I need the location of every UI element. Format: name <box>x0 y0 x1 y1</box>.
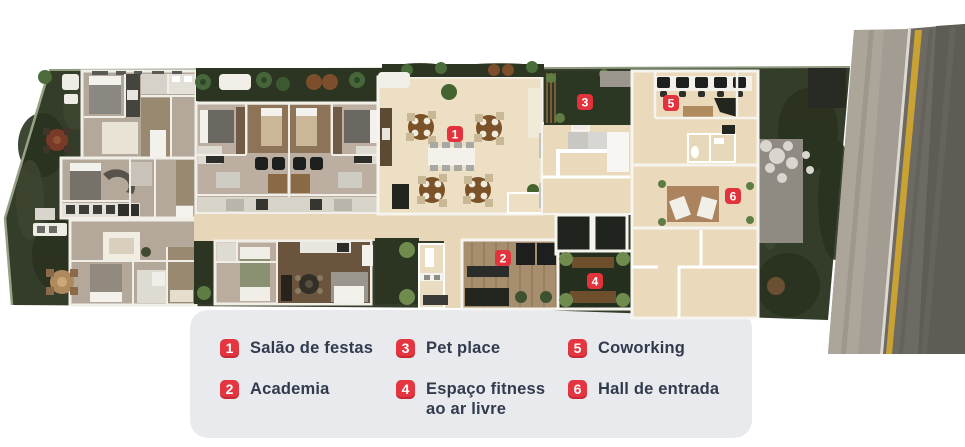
svg-text:6: 6 <box>730 190 737 204</box>
svg-text:5: 5 <box>668 97 675 111</box>
svg-text:1: 1 <box>452 128 459 142</box>
svg-text:2: 2 <box>500 252 507 266</box>
svg-text:4: 4 <box>592 275 599 289</box>
svg-text:3: 3 <box>582 96 589 110</box>
